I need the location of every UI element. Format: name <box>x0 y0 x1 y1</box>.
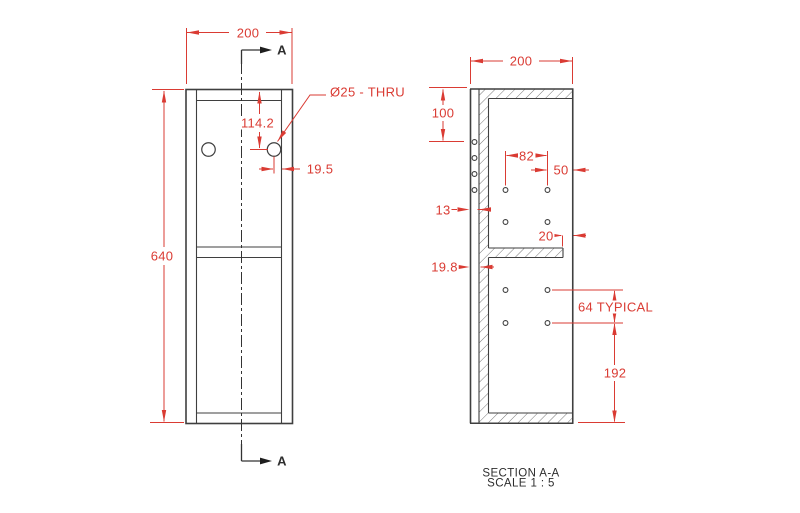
hole-callout-leader <box>278 95 327 142</box>
section-wall-holes <box>472 140 477 193</box>
dim-section-hole-spacing: 82 <box>518 150 535 163</box>
front-view-geometry <box>186 90 293 424</box>
cad-drawing-sheet: 200 640 114.2 19.5 Ø25 - THRU A A 200 10… <box>0 0 800 513</box>
dim-section-top-hole: 100 <box>431 107 456 120</box>
section-marker-bottom: A <box>276 455 288 468</box>
section-marker-top: A <box>276 43 288 56</box>
section-dimension-arrowheads <box>441 59 617 423</box>
cad-drawing-geometry <box>0 0 800 513</box>
hole-right <box>267 143 281 157</box>
section-scale: SCALE 1 : 5 <box>487 478 555 490</box>
front-dimension-lines <box>150 28 326 423</box>
hatch-top-plate <box>489 89 573 99</box>
dim-front-hole-vertical: 114.2 <box>240 117 275 130</box>
dim-section-bottom: 192 <box>603 367 628 380</box>
hole-callout: Ø25 - THRU <box>329 86 406 99</box>
dim-front-height: 640 <box>150 250 175 263</box>
dim-section-width: 200 <box>509 55 534 68</box>
dim-section-plate-thickness: 19.8 <box>430 261 459 274</box>
dim-front-hole-edge: 19.5 <box>306 163 335 176</box>
hole-left <box>202 143 216 157</box>
section-dimension-lines <box>429 57 625 423</box>
dim-section-edge-offset: 50 <box>552 164 569 177</box>
dim-front-width: 200 <box>236 26 261 39</box>
hatch-shelf <box>489 248 564 258</box>
section-arrow-icons <box>260 47 272 465</box>
hatch-left-wall <box>480 89 489 423</box>
dim-section-wall-thickness: 13 <box>434 203 451 216</box>
section-cutting-line <box>242 50 261 461</box>
dim-section-typical: 64 TYPICAL <box>577 301 654 314</box>
section-view-geometry <box>470 89 574 423</box>
dim-section-shelf-gap: 20 <box>537 229 554 242</box>
hatch-bottom-plate <box>489 413 573 423</box>
